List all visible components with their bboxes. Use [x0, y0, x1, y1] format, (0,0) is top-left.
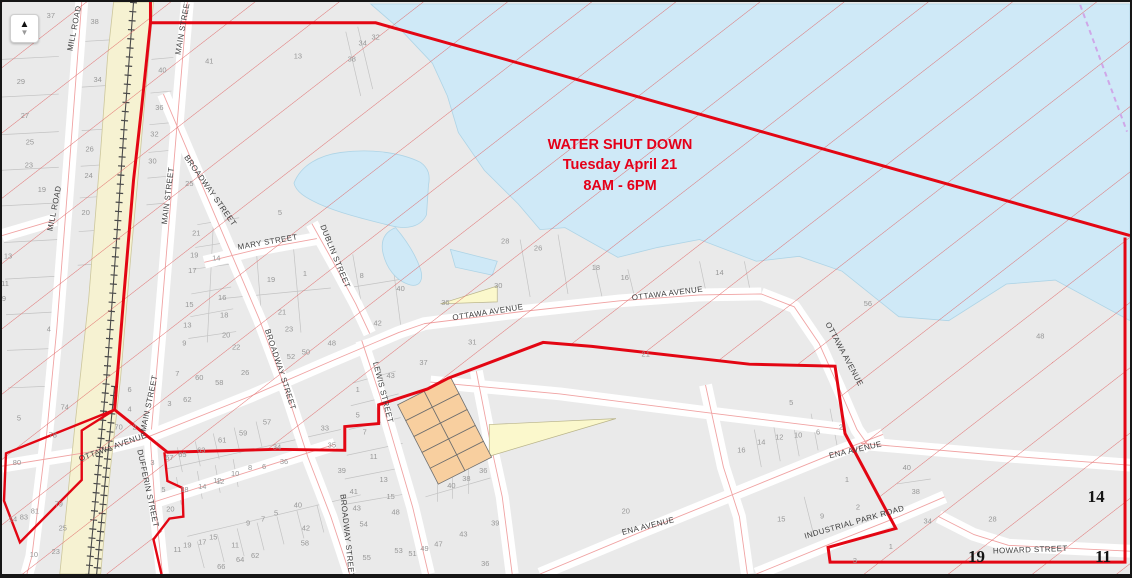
parcel-num: 17	[198, 537, 206, 546]
parcel-num: 5	[278, 208, 282, 217]
parcel-num: 19	[190, 250, 198, 259]
parcel-num: 36	[280, 457, 288, 466]
parcel-num: 10	[30, 550, 38, 559]
parcel-num: 58	[215, 378, 223, 387]
parcel-num: 15	[185, 300, 193, 309]
parcel-num: 61	[218, 435, 226, 444]
parcel-num: 22	[232, 342, 240, 351]
parcel-num: 13	[294, 51, 302, 60]
parcel-num: 5	[356, 411, 360, 420]
parcel-num: 20	[166, 505, 174, 514]
parcel-num: 62	[183, 395, 191, 404]
parcel-num: 49	[420, 544, 428, 553]
parcel-num: 18	[592, 263, 600, 272]
parcel-num: 64	[236, 555, 244, 564]
parcel-num: 67	[165, 453, 173, 462]
parcel-num: 3	[853, 556, 857, 565]
parcel-num: 13	[379, 475, 387, 484]
parcel-num: 83	[20, 513, 28, 522]
parcel-num: 14	[715, 268, 723, 277]
parcel-num: 16	[218, 293, 226, 302]
parcel-num: 26	[534, 243, 542, 252]
parcel-num: 60	[195, 373, 203, 382]
north-arrow-control[interactable]: ▲ ▼	[10, 14, 39, 43]
parcel-num: 4	[47, 325, 51, 334]
parcel-num: 15	[777, 515, 785, 524]
parcel-num: 36	[155, 103, 163, 112]
parcel-num: 55	[363, 553, 371, 562]
parcel-num: 8	[248, 463, 252, 472]
parcel-num: 42	[302, 523, 310, 532]
parcel-num: 20	[82, 208, 90, 217]
parcel-num: 18	[180, 485, 188, 494]
parcel-num: 38	[91, 17, 99, 26]
parcel-num: 1	[303, 269, 307, 278]
parcel-num: 51	[408, 549, 416, 558]
parcel-num: 42	[374, 319, 382, 328]
parcel-num: 58	[301, 538, 309, 547]
parcel-num: 13	[183, 321, 191, 330]
notice-time: 8AM - 6PM	[509, 176, 731, 196]
parcel-num: 14	[198, 482, 206, 491]
parcel-num: 20	[222, 331, 230, 340]
parcel-num: 2	[132, 423, 136, 432]
sheet-num: 11	[1095, 547, 1111, 566]
parcel-num: 43	[353, 504, 361, 513]
parcel-num: 40	[903, 463, 911, 472]
parcel-num: 53	[394, 546, 402, 555]
parcel-num: 39	[338, 466, 346, 475]
parcel-num: 7	[261, 515, 265, 524]
parcel-num: 11	[370, 452, 378, 461]
parcel-num: 48	[328, 338, 336, 347]
parcel-num: 1	[845, 475, 849, 484]
parcel-num: 80	[13, 458, 21, 467]
parcel-num: 10	[794, 430, 802, 439]
parcel-num: 57	[263, 418, 271, 427]
parcel-num: 20	[622, 507, 630, 516]
parcel-num: 40	[396, 284, 404, 293]
parcel-num: 5	[161, 485, 165, 494]
parcel-num: 19	[183, 540, 191, 549]
notice-date: Tuesday April 21	[509, 155, 731, 175]
map-svg: 3738404129343627322526302324192520133834…	[2, 2, 1130, 574]
notice-title: WATER SHUT DOWN	[509, 135, 731, 155]
parcel-num: 41	[350, 487, 358, 496]
parcel-num: 4	[127, 405, 131, 414]
parcel-num: 9	[820, 512, 824, 521]
parcel-num: 23	[25, 160, 33, 169]
parcel-num: 13	[4, 251, 12, 260]
parcel-num: 35	[328, 440, 336, 449]
parcel-num: 70	[114, 423, 122, 432]
parcel-num: 15	[209, 532, 217, 541]
parcel-num: 7	[363, 427, 367, 436]
parcel-num: 1	[889, 542, 893, 551]
parcel-num: 56	[864, 299, 872, 308]
parcel-num: 11	[231, 540, 239, 549]
parcel-num: 30	[494, 281, 502, 290]
parcel-num: 25	[26, 138, 34, 147]
parcel-num: 54	[360, 520, 368, 529]
parcel-num: 40	[294, 501, 302, 510]
parcel-num: 40	[447, 481, 455, 490]
water-shutdown-notice: WATER SHUT DOWN Tuesday April 21 8AM - 6…	[509, 135, 731, 196]
parcel-num: 16	[621, 273, 629, 282]
parcel-num: 21	[642, 349, 650, 358]
parcel-num: 14	[757, 437, 765, 446]
parcel-num: 9	[182, 338, 186, 347]
parcel-num: 8	[360, 271, 364, 280]
parcel-num: 34	[94, 75, 102, 84]
parcel-num: 24	[85, 171, 93, 180]
parcel-num: 33	[321, 424, 329, 433]
parcel-num: 12	[775, 432, 783, 441]
sheet-num: 14	[1088, 487, 1105, 506]
parcel-num: 39	[491, 519, 499, 528]
parcel-num: 48	[1036, 331, 1044, 340]
parcel-num: 31	[468, 337, 476, 346]
parcel-num: 37	[419, 358, 427, 367]
parcel-num: 36	[479, 466, 487, 475]
parcel-num: 9	[246, 519, 250, 528]
parcel-num: 21	[278, 308, 286, 317]
parcel-num: 78	[49, 430, 57, 439]
parcel-num: 2	[856, 503, 860, 512]
parcel-num: 32	[372, 33, 380, 42]
parcel-num: 3	[150, 458, 154, 467]
parcel-num: 47	[434, 539, 442, 548]
parcel-num: 59	[239, 428, 247, 437]
parcel-num: 19	[267, 275, 275, 284]
parcel-num: 32	[150, 130, 158, 139]
parcel-num: 25	[59, 523, 67, 532]
parcel-num: 27	[21, 111, 29, 120]
parcel-num: 41	[205, 56, 213, 65]
parcel-num: 38	[348, 54, 356, 63]
parcel-num: 52	[287, 352, 295, 361]
parcel-num: 9	[2, 294, 6, 303]
parcel-num: 28	[988, 515, 996, 524]
parcel-num: 25	[185, 179, 193, 188]
parcel-num: 3	[167, 399, 171, 408]
parcel-num: 18	[220, 311, 228, 320]
parcel-num: 23	[52, 547, 60, 556]
parcel-num: 36	[441, 298, 449, 307]
parcel-num: 7	[175, 369, 179, 378]
parcel-num: 16	[737, 445, 745, 454]
parcel-num: 37	[47, 11, 55, 20]
parcel-num: 11	[173, 545, 181, 554]
parcel-num: 74	[61, 403, 69, 412]
parcel-num: 14	[212, 253, 220, 262]
parcel-num: 65	[178, 450, 186, 459]
parcel-num: 62	[251, 551, 259, 560]
parcel-num: 6	[816, 427, 820, 436]
north-arrow-down-icon: ▼	[21, 30, 29, 36]
parcel-num: 36	[481, 559, 489, 568]
parcel-num: 34	[924, 517, 932, 526]
parcel-num: 34	[359, 39, 367, 48]
parcel-num: 81	[31, 507, 39, 516]
parcel-num: 66	[217, 562, 225, 571]
parcel-num: 38	[462, 474, 470, 483]
parcel-num: 63	[197, 445, 205, 454]
parcel-num: 5	[789, 398, 793, 407]
parcel-num: 79	[55, 500, 63, 509]
parcel-num: 14	[9, 515, 17, 524]
parcel-num: 23	[285, 325, 293, 334]
parcel-num: 17	[188, 266, 196, 275]
map-canvas[interactable]: 3738404129343627322526302324192520133834…	[0, 0, 1132, 578]
parcel-num: 19	[38, 185, 46, 194]
parcel-num: 34	[273, 442, 281, 451]
parcel-num: 28	[501, 236, 509, 245]
parcel-num: 2	[839, 423, 843, 432]
parcel-num: 43	[459, 529, 467, 538]
parcel-num: 50	[302, 347, 310, 356]
parcel-num: 12	[213, 476, 221, 485]
parcel-num: 5	[274, 509, 278, 518]
parcel-num: 26	[241, 368, 249, 377]
parcel-num: 29	[17, 77, 25, 86]
parcel-num: 11	[2, 279, 9, 288]
parcel-num: 1	[356, 385, 360, 394]
parcel-num: 43	[386, 371, 394, 380]
parcel-num: 5	[17, 414, 21, 423]
parcel-num: 21	[192, 229, 200, 238]
parcel-num: 48	[391, 508, 399, 517]
parcel-num: 6	[127, 385, 131, 394]
parcel-num: 40	[158, 65, 166, 74]
parcel-num: 38	[912, 487, 920, 496]
sheet-num: 19	[968, 547, 985, 566]
parcel-num: 30	[148, 156, 156, 165]
parcel-num: 6	[262, 462, 266, 471]
parcel-num: 26	[86, 144, 94, 153]
parcel-num: 10	[231, 469, 239, 478]
parcel-num: 15	[386, 492, 394, 501]
